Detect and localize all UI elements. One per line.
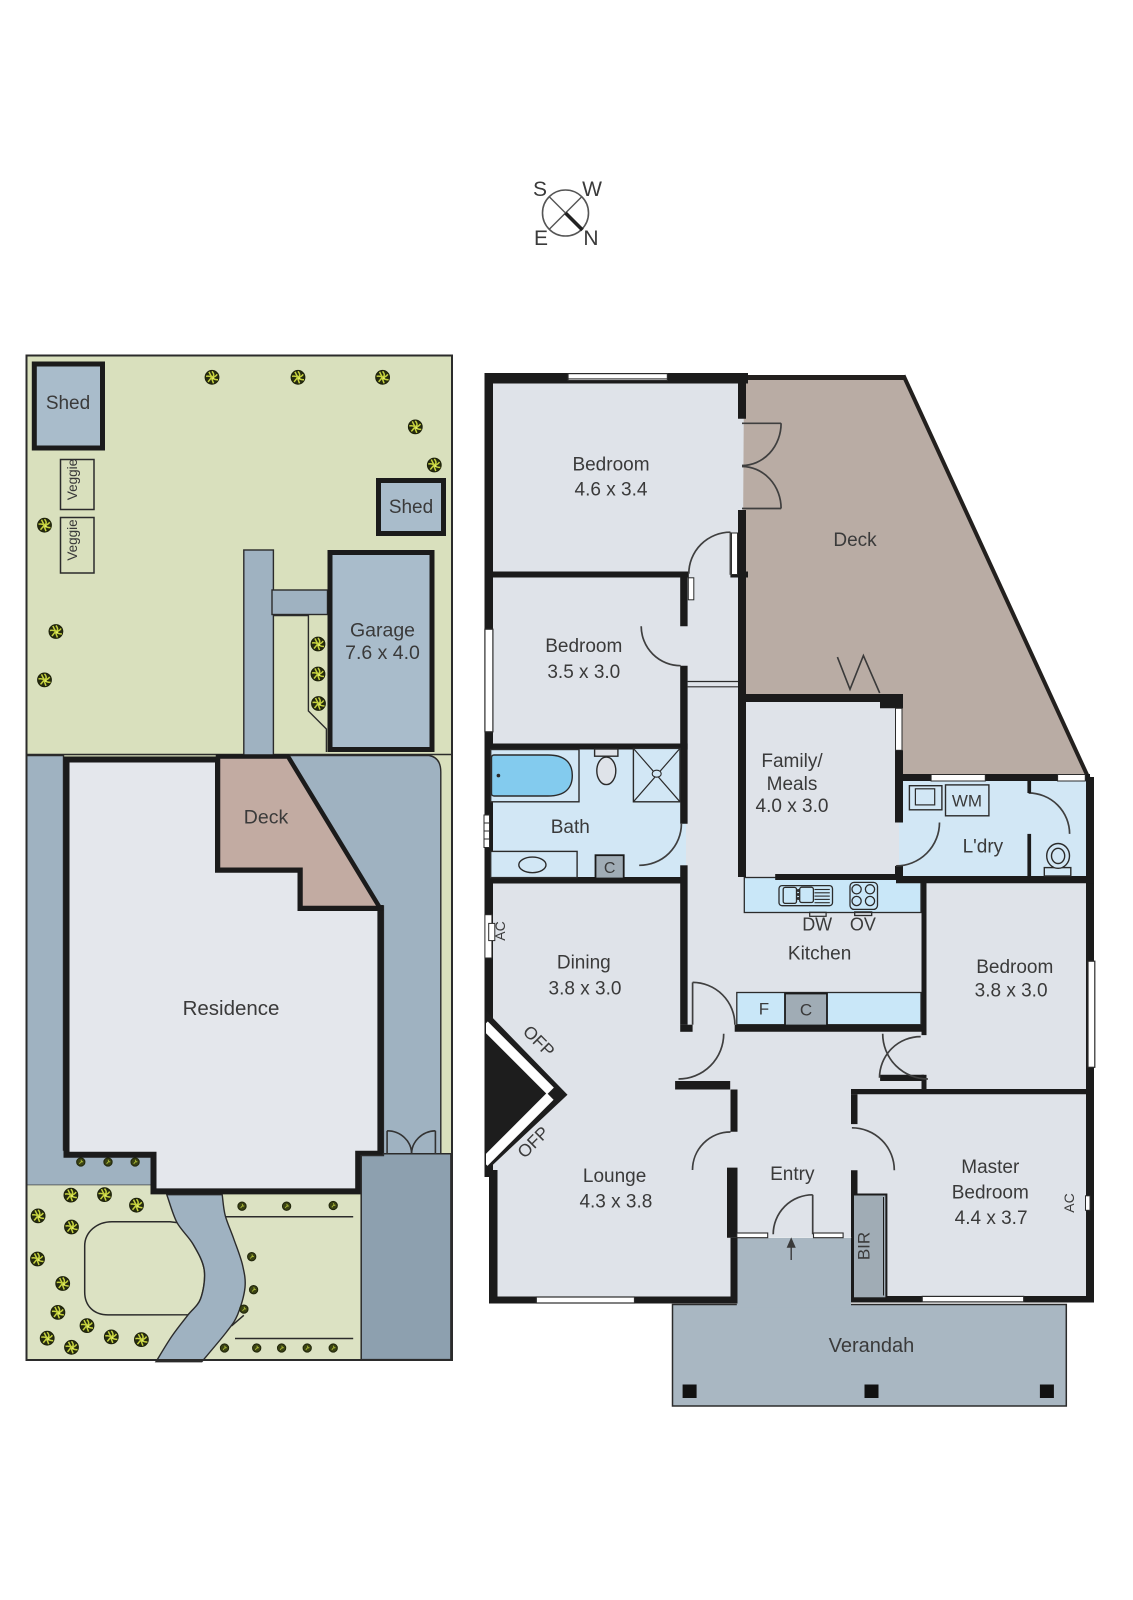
svg-text:Entry: Entry — [770, 1164, 815, 1185]
svg-text:BIR: BIR — [855, 1232, 874, 1260]
svg-text:4.6 x 3.4: 4.6 x 3.4 — [575, 479, 648, 500]
svg-text:3.8 x 3.0: 3.8 x 3.0 — [975, 981, 1048, 1002]
svg-text:C: C — [604, 860, 616, 877]
svg-text:N: N — [583, 227, 598, 250]
svg-text:DW: DW — [802, 914, 832, 934]
svg-text:Shed: Shed — [46, 393, 90, 414]
svg-text:Bath: Bath — [551, 817, 590, 838]
svg-text:Master: Master — [961, 1157, 1020, 1178]
svg-text:Bedroom: Bedroom — [545, 636, 622, 657]
svg-text:OV: OV — [850, 914, 876, 934]
svg-text:Garage: Garage — [350, 620, 415, 642]
svg-text:7.6 x 4.0: 7.6 x 4.0 — [345, 642, 420, 664]
svg-text:Family/: Family/ — [761, 751, 823, 772]
svg-text:E: E — [534, 227, 548, 250]
svg-text:Kitchen: Kitchen — [788, 944, 851, 965]
svg-text:W: W — [582, 178, 602, 201]
svg-text:AC: AC — [492, 921, 508, 940]
svg-text:Veggie: Veggie — [65, 459, 80, 500]
svg-text:Verandah: Verandah — [829, 1335, 915, 1357]
svg-text:Meals: Meals — [767, 774, 818, 795]
svg-text:Deck: Deck — [833, 530, 877, 551]
svg-text:C: C — [800, 1001, 812, 1020]
svg-text:Lounge: Lounge — [583, 1166, 646, 1187]
svg-text:Bedroom: Bedroom — [952, 1182, 1029, 1203]
svg-text:Bedroom: Bedroom — [572, 455, 649, 476]
svg-text:Deck: Deck — [244, 807, 289, 829]
svg-text:Shed: Shed — [389, 497, 433, 518]
svg-text:AC: AC — [1061, 1193, 1077, 1212]
svg-text:Residence: Residence — [183, 997, 280, 1020]
svg-text:S: S — [533, 178, 547, 201]
svg-text:F: F — [759, 1000, 769, 1019]
svg-text:Veggie: Veggie — [65, 519, 80, 560]
svg-text:3.5 x 3.0: 3.5 x 3.0 — [547, 662, 620, 683]
svg-text:Dining: Dining — [557, 952, 611, 973]
svg-text:WM: WM — [952, 792, 982, 811]
svg-text:L'dry: L'dry — [963, 837, 1004, 858]
svg-text:4.4 x 3.7: 4.4 x 3.7 — [955, 1208, 1028, 1229]
svg-text:4.0 x 3.0: 4.0 x 3.0 — [756, 796, 829, 817]
svg-text:Bedroom: Bedroom — [976, 957, 1053, 978]
svg-text:4.3 x 3.8: 4.3 x 3.8 — [579, 1192, 652, 1213]
svg-text:3.8 x 3.0: 3.8 x 3.0 — [549, 978, 622, 999]
